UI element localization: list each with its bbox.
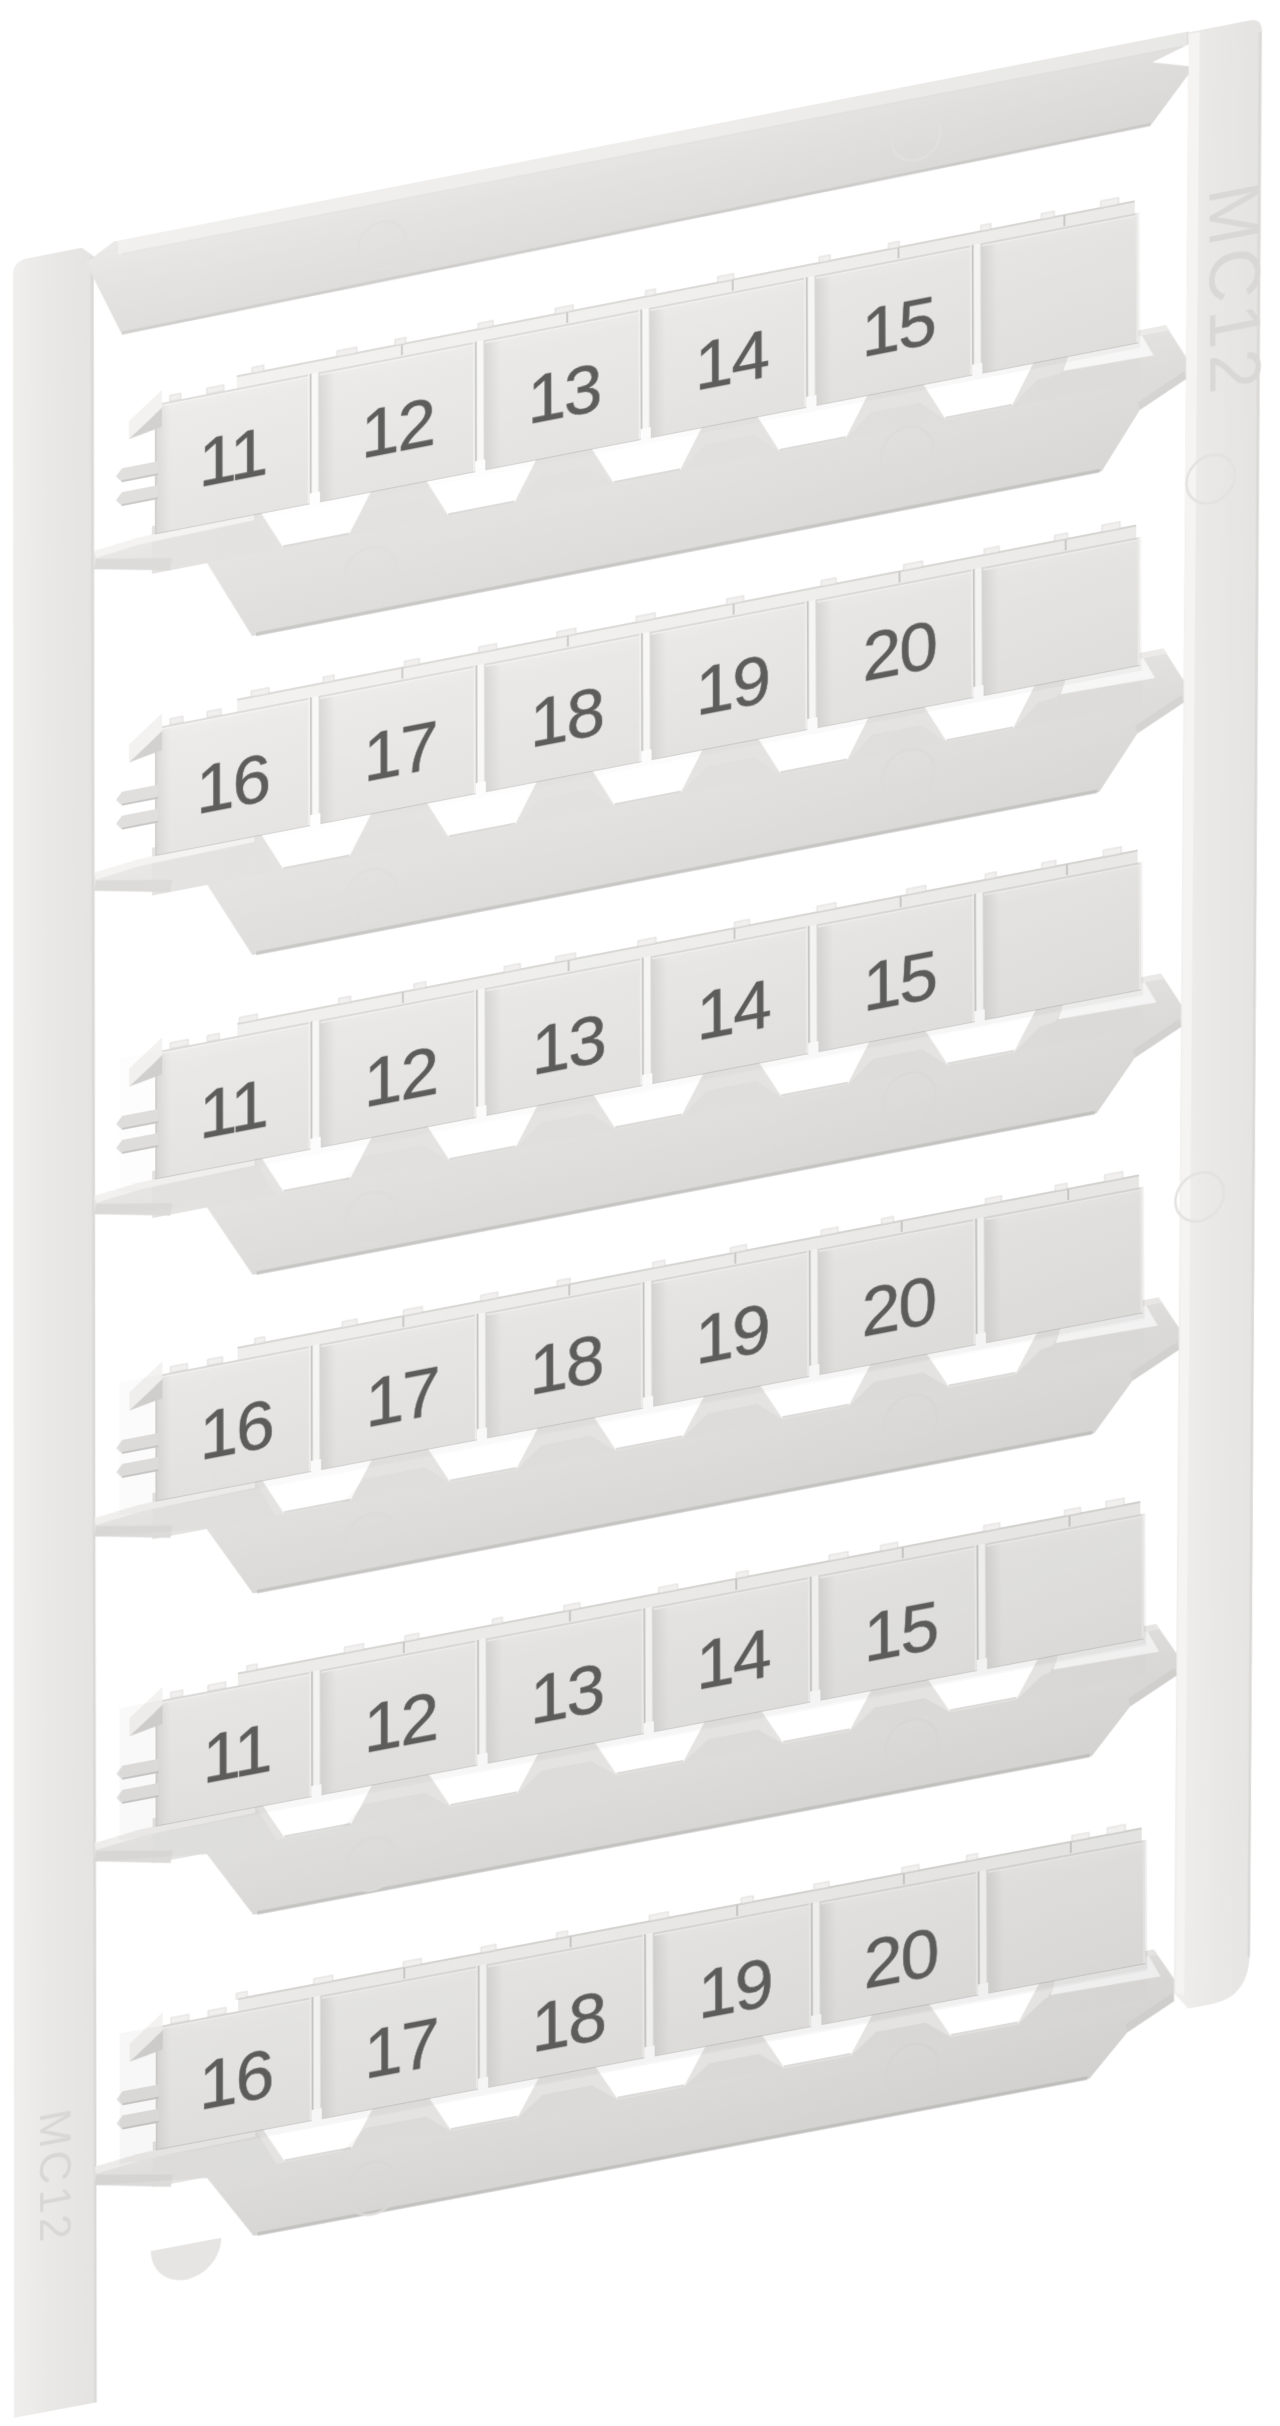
svg-text:MC12: MC12: [1193, 176, 1274, 403]
svg-text:MC12: MC12: [30, 2105, 79, 2248]
